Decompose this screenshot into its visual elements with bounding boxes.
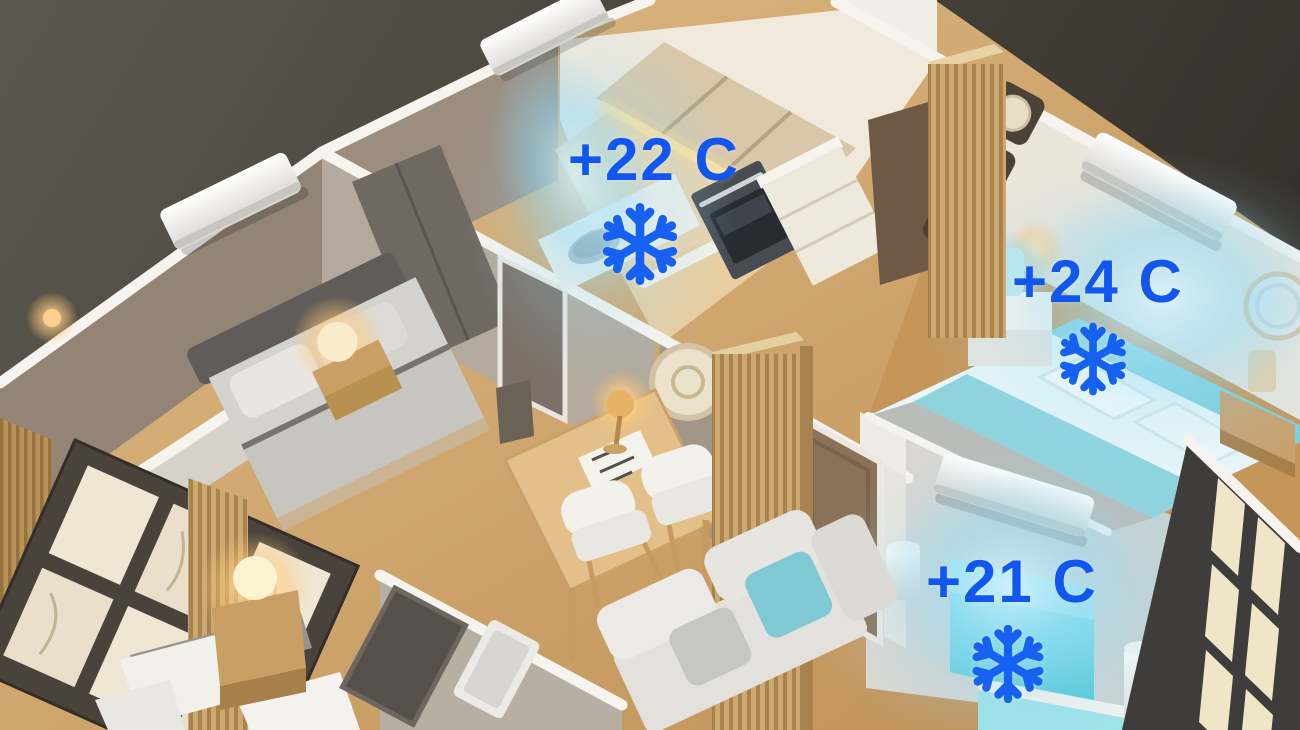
apartment-3d-scene [0, 0, 1300, 730]
table-lamp [233, 556, 277, 600]
curtain-column-top [928, 44, 1006, 338]
wall-monitor [496, 380, 534, 444]
apartment-floorplan-image: +22 C +24 C +21 C [0, 0, 1300, 730]
